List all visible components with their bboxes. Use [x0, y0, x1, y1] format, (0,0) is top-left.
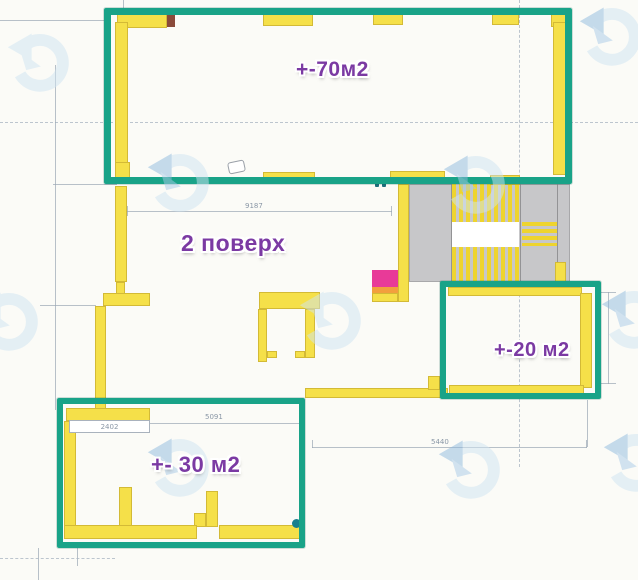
stairwell-divider	[451, 184, 452, 282]
dimension-tick	[600, 292, 616, 293]
dimension-tick	[600, 383, 616, 384]
stairs-upper-flight	[452, 184, 519, 222]
wall-segment	[305, 388, 448, 398]
watermark-circular-arrow-icon	[6, 28, 72, 94]
wall-segment	[259, 292, 320, 309]
dimension-label: 9187	[245, 202, 263, 210]
wall-segment	[398, 184, 409, 302]
outline-line	[38, 548, 39, 580]
watermark-circular-arrow-icon	[0, 287, 41, 353]
wall-segment	[258, 309, 267, 362]
area-label-70m2: +-70м2	[296, 58, 369, 82]
dimension-tick	[127, 206, 128, 216]
wall-segment	[305, 309, 315, 358]
dimension-line	[312, 447, 587, 448]
area-70m2-highlight	[104, 8, 572, 184]
outline-line	[77, 548, 78, 566]
floor-plan: 9187 5440	[0, 0, 638, 580]
outline-line	[53, 184, 117, 185]
wall-segment	[267, 351, 277, 358]
outline-line	[40, 305, 96, 306]
grid-line	[0, 558, 115, 559]
wall-segment	[428, 376, 440, 390]
wall-segment	[95, 306, 106, 410]
wall-segment	[372, 293, 398, 302]
wall-segment	[555, 262, 566, 282]
watermark-circular-arrow-icon	[578, 2, 638, 68]
floor-label: 2 поверх	[181, 230, 285, 257]
dimension-label: 5440	[431, 438, 449, 446]
dimension-tick	[391, 206, 392, 216]
stairs-side-steps	[522, 222, 557, 246]
watermark-circular-arrow-icon	[602, 428, 638, 494]
outline-line	[0, 20, 107, 21]
dimension-line	[587, 400, 588, 447]
dimension-line	[608, 292, 609, 384]
dimension-tick	[312, 440, 313, 448]
pink-shaft-marker	[372, 270, 398, 287]
area-label-20m2: +-20 м2	[494, 339, 570, 362]
watermark-circular-arrow-icon	[600, 285, 638, 351]
dimension-line	[127, 211, 392, 212]
stairs-landing	[452, 222, 519, 247]
stairwell-divider	[520, 184, 521, 282]
wall-segment	[115, 186, 127, 282]
area-label-30m2: +- 30 м2	[151, 452, 240, 478]
wall-segment	[295, 351, 305, 358]
stairs-lower-flight	[452, 247, 519, 283]
wall-segment	[103, 293, 150, 306]
outline-line	[55, 65, 56, 410]
